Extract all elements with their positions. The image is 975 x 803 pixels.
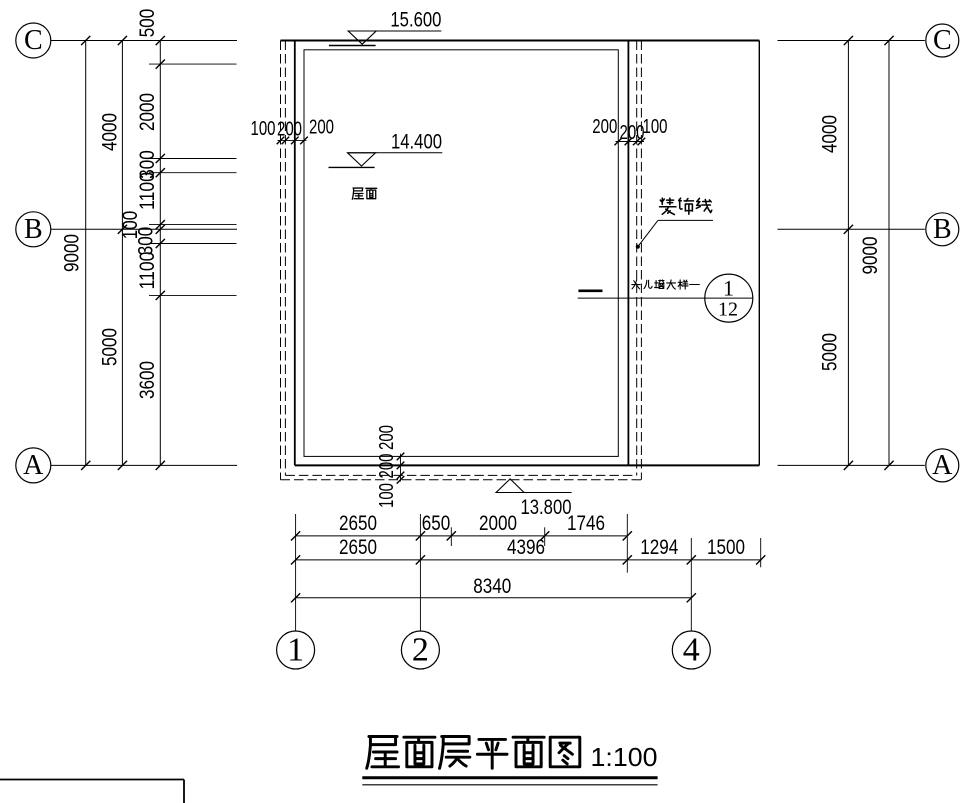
svg-text:200: 200 — [620, 122, 645, 144]
svg-text:4000: 4000 — [819, 115, 842, 153]
svg-text:B: B — [933, 214, 952, 245]
svg-text:5000: 5000 — [819, 333, 842, 371]
svg-text:200: 200 — [376, 425, 398, 450]
svg-text:2000: 2000 — [136, 93, 159, 131]
svg-text:4396: 4396 — [507, 536, 545, 559]
svg-text:5000: 5000 — [99, 328, 122, 366]
svg-text:200: 200 — [376, 454, 398, 479]
svg-text:12: 12 — [718, 299, 738, 321]
svg-text:2000: 2000 — [479, 512, 517, 535]
svg-text:C: C — [933, 25, 952, 56]
svg-text:A: A — [23, 450, 44, 481]
svg-text:1100: 1100 — [136, 252, 159, 290]
svg-text:B: B — [24, 214, 43, 245]
svg-text:8340: 8340 — [473, 575, 511, 598]
svg-text:200: 200 — [309, 117, 334, 139]
svg-text:100: 100 — [376, 483, 398, 508]
svg-text:C: C — [24, 25, 43, 56]
svg-text:500: 500 — [136, 9, 159, 38]
svg-text:1746: 1746 — [567, 512, 605, 535]
svg-text:15.600: 15.600 — [390, 8, 441, 31]
svg-text:2: 2 — [412, 632, 429, 669]
svg-text:650: 650 — [422, 512, 451, 535]
svg-text:1: 1 — [723, 276, 734, 301]
svg-text:14.400: 14.400 — [391, 131, 442, 154]
svg-text:100: 100 — [643, 116, 668, 138]
svg-text:4000: 4000 — [99, 113, 122, 151]
svg-text:A: A — [932, 450, 953, 481]
svg-text:4: 4 — [683, 632, 700, 669]
svg-text:3600: 3600 — [136, 361, 159, 399]
svg-text:1: 1 — [287, 632, 304, 669]
svg-text:2650: 2650 — [339, 512, 377, 535]
svg-text:200: 200 — [592, 116, 617, 138]
svg-text:300: 300 — [135, 227, 158, 256]
svg-text:200: 200 — [277, 119, 302, 141]
svg-text:1500: 1500 — [707, 536, 745, 559]
svg-text:1294: 1294 — [640, 536, 678, 559]
svg-text:9000: 9000 — [859, 237, 882, 275]
svg-text:1:100: 1:100 — [591, 742, 658, 772]
svg-text:13.800: 13.800 — [521, 496, 572, 519]
svg-text:100: 100 — [251, 118, 276, 140]
svg-text:2650: 2650 — [339, 536, 377, 559]
svg-text:9000: 9000 — [61, 234, 84, 272]
svg-text:1100: 1100 — [136, 172, 159, 210]
